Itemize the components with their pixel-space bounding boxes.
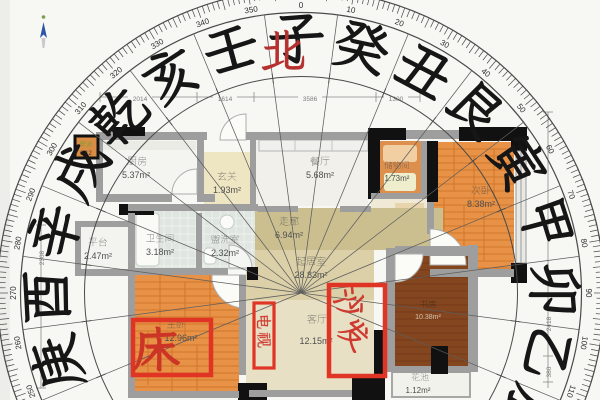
svg-text:2308: 2308 <box>39 250 46 265</box>
svg-text:1.73m²: 1.73m² <box>385 174 410 183</box>
svg-text:90: 90 <box>584 289 593 298</box>
svg-text:0: 0 <box>299 1 304 10</box>
svg-text:3586: 3586 <box>303 96 318 103</box>
svg-text:3.18m²: 3.18m² <box>146 247 174 257</box>
svg-text:2418: 2418 <box>546 316 553 331</box>
svg-text:1.93m²: 1.93m² <box>213 185 241 195</box>
svg-text:1.12m²: 1.12m² <box>406 386 431 395</box>
svg-text:8.38m²: 8.38m² <box>467 199 495 209</box>
svg-text:2.32m²: 2.32m² <box>211 248 239 258</box>
svg-text:5.37m²: 5.37m² <box>122 170 150 180</box>
svg-text:2014: 2014 <box>133 96 148 103</box>
svg-text:5.68m²: 5.68m² <box>306 170 334 180</box>
svg-text:10.38m²: 10.38m² <box>415 314 441 321</box>
svg-text:380: 380 <box>546 366 553 377</box>
svg-text:270: 270 <box>9 286 18 300</box>
svg-text:1300: 1300 <box>389 96 404 103</box>
svg-text:6.94m²: 6.94m² <box>275 230 303 240</box>
